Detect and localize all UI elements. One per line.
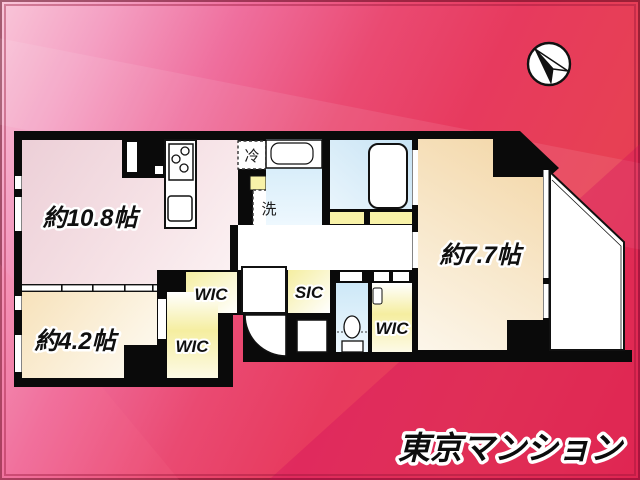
bathtub	[369, 144, 407, 208]
pipe-space	[373, 288, 382, 304]
compass-icon	[528, 43, 570, 85]
brand-logo: 東京マンション	[398, 430, 625, 466]
wall-block	[124, 345, 163, 378]
balcony	[550, 172, 624, 350]
bathroom	[330, 140, 412, 225]
entrance-step	[297, 320, 327, 352]
sic-label: SIC	[295, 283, 324, 302]
listing-image: 約10.8帖 約4.2帖 約7.7帖 WIC WIC WIC SIC 冷 洗 東…	[0, 0, 640, 480]
kitchen-sink	[168, 196, 192, 221]
door-slot	[158, 299, 166, 339]
window-band	[22, 284, 157, 292]
room-42-label: 約4.2帖	[34, 328, 119, 355]
door-slots-row	[340, 272, 409, 281]
room-ldk-label: 約10.8帖	[43, 205, 142, 232]
wic-top-label: WIC	[194, 285, 228, 304]
washer-label: 洗	[261, 201, 276, 218]
entrance-hall	[242, 267, 286, 313]
corridor	[238, 225, 412, 270]
closet-wic-left-floor	[167, 292, 218, 378]
threshold-mat	[250, 176, 266, 190]
room-77-label: 約7.7帖	[439, 242, 524, 269]
wic-left-label: WIC	[175, 337, 209, 356]
floor-plan: 約10.8帖 約4.2帖 約7.7帖 WIC WIC WIC SIC 冷 洗 東…	[0, 0, 640, 480]
washbasin	[271, 143, 313, 164]
fridge-label: 冷	[244, 148, 259, 165]
wic-right-label: WIC	[375, 319, 409, 338]
